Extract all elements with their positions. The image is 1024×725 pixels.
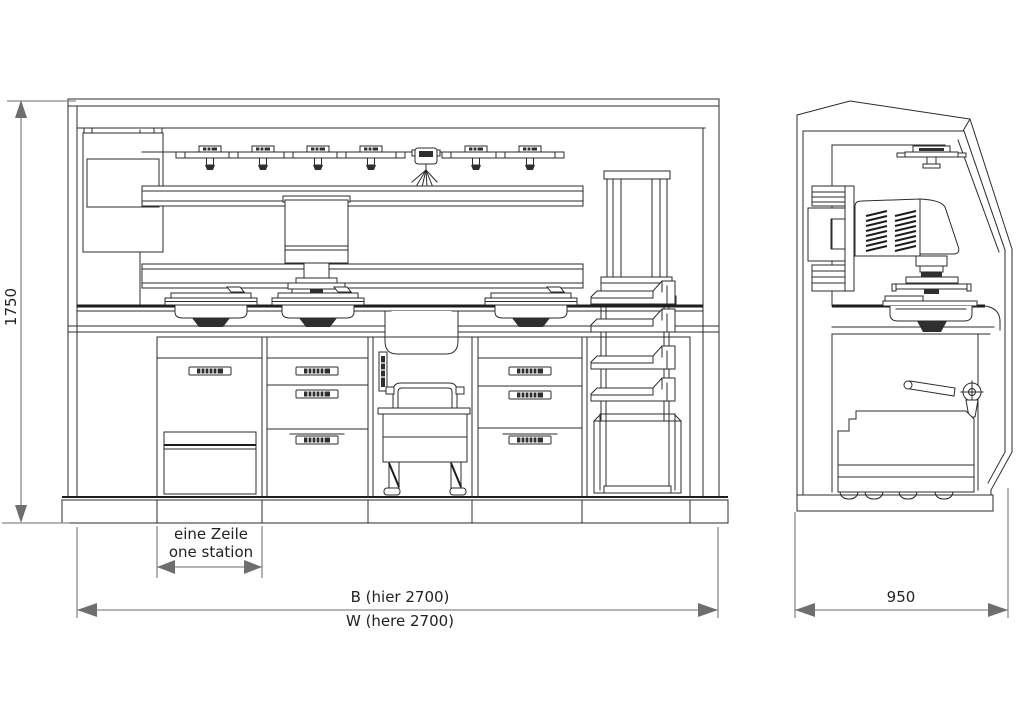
tool-rail [142,146,564,187]
tool-hanger [337,146,405,170]
tray-stacker [591,346,681,493]
tool-hanger [496,146,564,170]
front-view [62,99,728,523]
cabinet-door-unit [157,358,262,494]
mounting-bracket [808,186,854,291]
machine-base-unit [838,411,974,499]
elevation-drawing [0,0,1024,725]
side-top-tool [897,146,966,168]
drawer-handle [296,436,338,444]
drawer-handle [296,390,338,398]
roof [797,101,970,119]
station-label-de: eine Zeile [161,525,261,543]
spindle-head [855,199,971,294]
station-label-en: one station [161,543,261,561]
swarf-container [594,414,681,493]
tool-cart [378,383,470,495]
door-handle [189,367,231,375]
tool-cart-bay [378,352,470,495]
upper-guide-rail [142,186,583,206]
workpiece-fixture [165,287,257,327]
stacker-tray [591,378,675,401]
drawer-handle [509,367,551,375]
drawer-unit [478,358,582,444]
workpiece-fixture [272,287,364,327]
lower-guide-rail [142,264,583,288]
depth-dimension-label: 950 [851,588,951,606]
cabinet-row [157,337,690,497]
workpiece-fixture [485,287,577,327]
pullout-bin [164,432,256,494]
drawer-handle [296,367,338,375]
width-label-en: W (here 2700) [300,612,500,630]
height-dimension-label: 1750 [2,267,20,347]
stacker-tray [591,346,675,369]
side-plinth [797,495,993,511]
drawer-handle [509,436,551,444]
width-label-de: B (hier 2700) [300,588,500,606]
side-view [797,101,1012,511]
stacker-tray [591,309,675,332]
base-plinth [62,497,728,523]
drawer-unit [267,358,368,444]
drawing-canvas: 1750 eine Zeile one station B (hier 2700… [0,0,1024,725]
drawer-handle [509,391,551,399]
spray-nozzle [412,148,440,187]
sink-opening [379,311,464,354]
